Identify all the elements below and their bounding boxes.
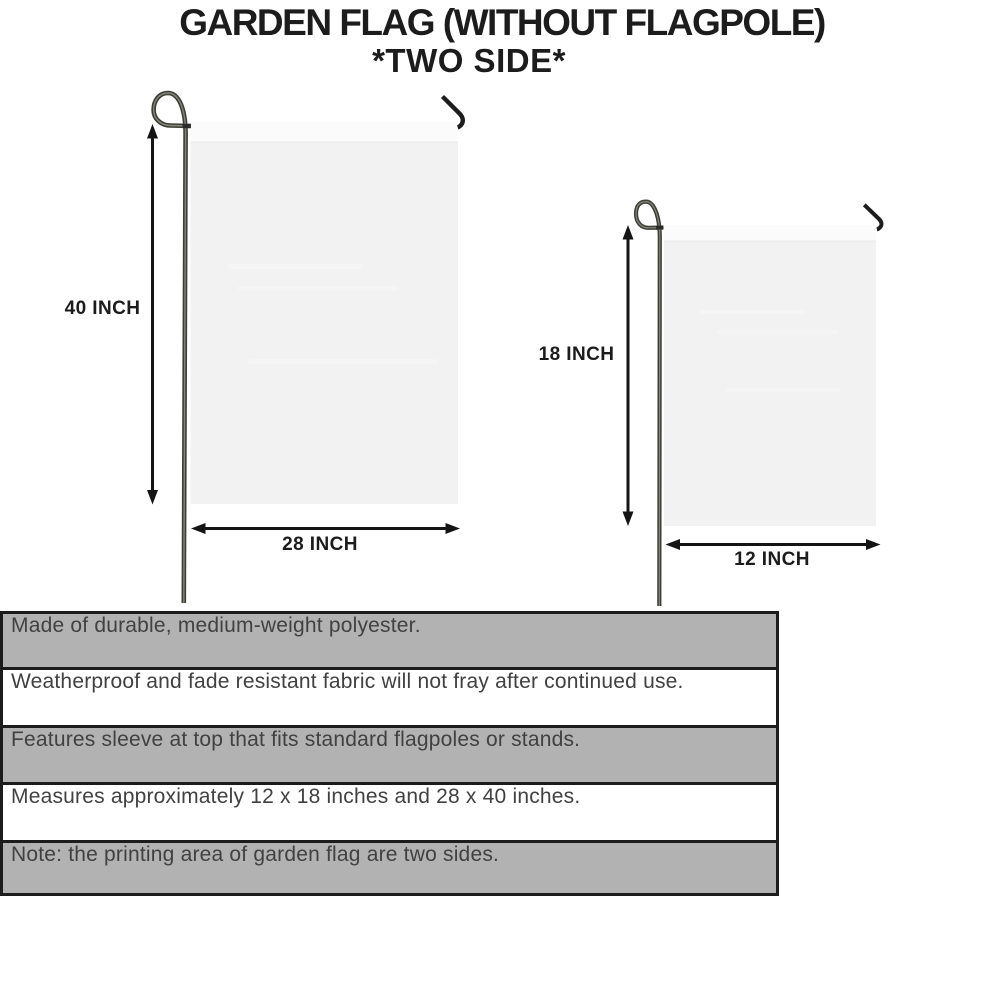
svg-text:40 INCH: 40 INCH: [65, 298, 141, 319]
svg-text:28 INCH: 28 INCH: [282, 534, 358, 555]
svg-text:12 INCH: 12 INCH: [734, 549, 810, 570]
svg-text:18 INCH: 18 INCH: [539, 344, 615, 365]
